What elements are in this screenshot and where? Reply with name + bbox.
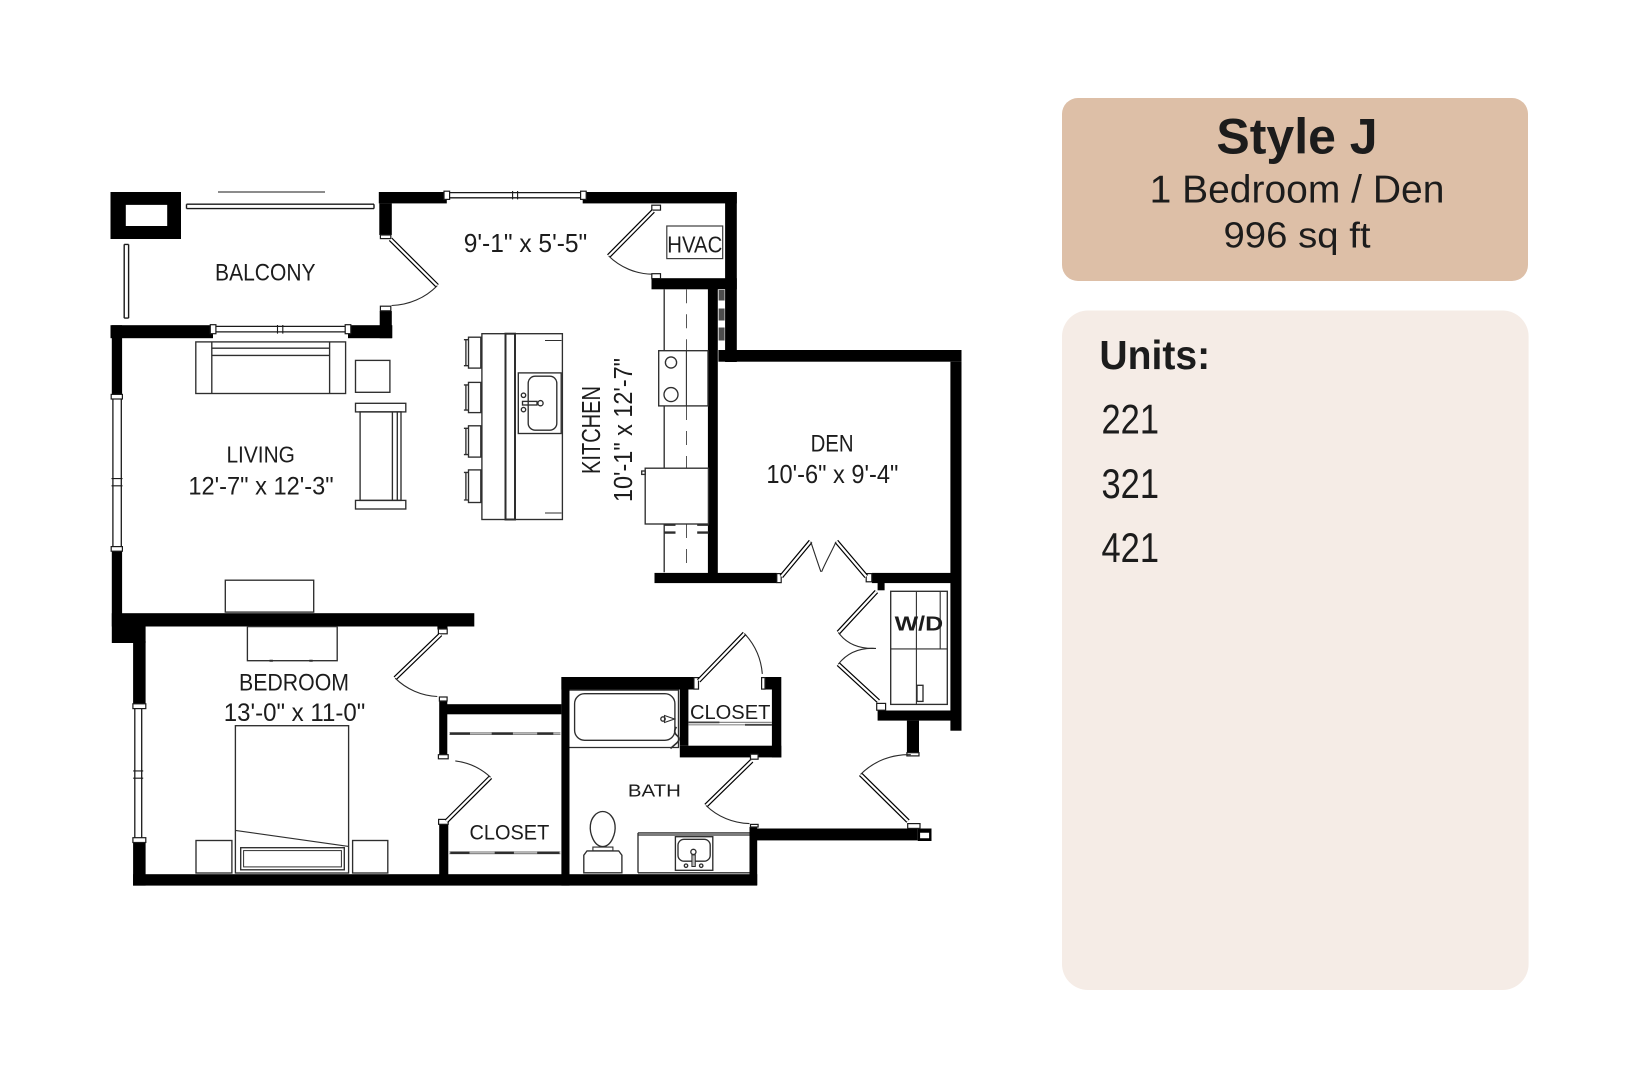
svg-text:321: 321 bbox=[1102, 460, 1160, 507]
svg-text:BATH: BATH bbox=[628, 780, 681, 800]
svg-text:13'-0" x 11-0": 13'-0" x 11-0" bbox=[224, 699, 366, 727]
svg-text:CLOSET: CLOSET bbox=[690, 701, 771, 724]
svg-text:12'-7" x 12'-3": 12'-7" x 12'-3" bbox=[188, 473, 333, 501]
svg-text:LIVING: LIVING bbox=[226, 442, 295, 468]
svg-text:Units:: Units: bbox=[1099, 332, 1210, 378]
svg-text:CLOSET: CLOSET bbox=[470, 822, 550, 845]
svg-text:221: 221 bbox=[1102, 395, 1160, 442]
svg-text:DEN: DEN bbox=[811, 430, 854, 457]
svg-text:BEDROOM: BEDROOM bbox=[239, 670, 349, 697]
svg-text:Style J: Style J bbox=[1216, 109, 1377, 165]
svg-text:421: 421 bbox=[1102, 524, 1160, 571]
svg-text:BALCONY: BALCONY bbox=[215, 259, 316, 286]
svg-text:10'-1" x 12'-7": 10'-1" x 12'-7" bbox=[610, 358, 638, 502]
svg-text:996 sq ft: 996 sq ft bbox=[1224, 214, 1371, 255]
svg-text:W/D: W/D bbox=[895, 614, 944, 636]
svg-text:HVAC: HVAC bbox=[667, 231, 722, 257]
svg-text:KITCHEN: KITCHEN bbox=[576, 386, 606, 474]
svg-text:1 Bedroom / Den: 1 Bedroom / Den bbox=[1150, 168, 1445, 211]
svg-text:10'-6" x 9'-4": 10'-6" x 9'-4" bbox=[766, 459, 898, 489]
svg-text:9'-1" x 5'-5": 9'-1" x 5'-5" bbox=[464, 228, 588, 258]
